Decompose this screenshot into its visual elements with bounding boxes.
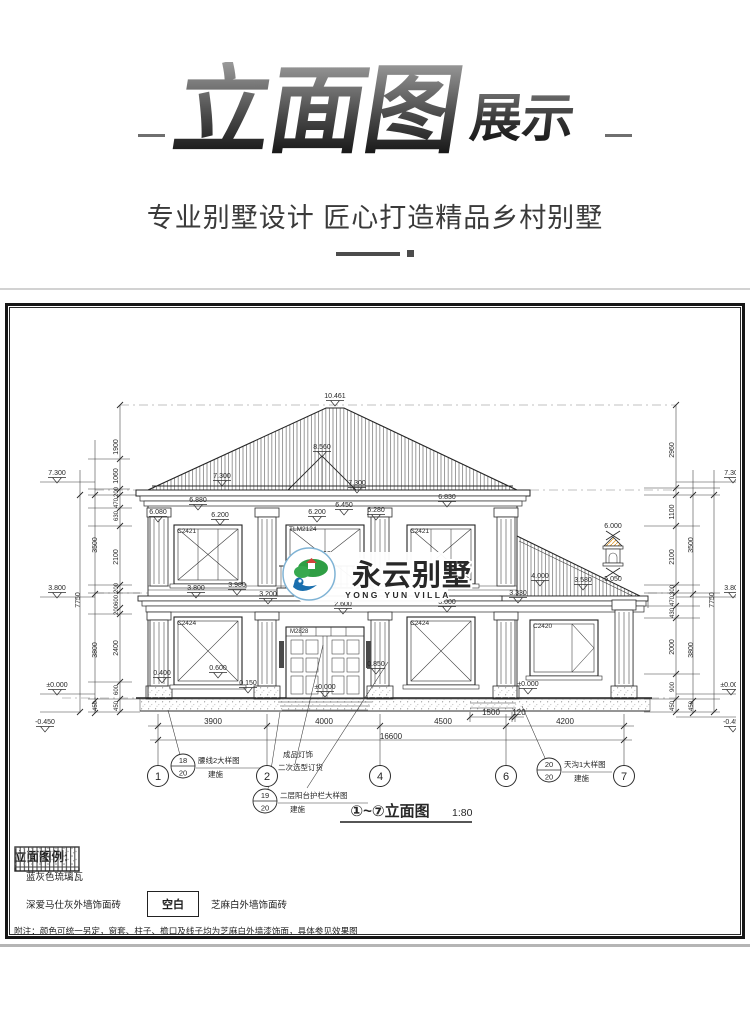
page-title: 立面图展示	[0, 62, 750, 159]
title-main: 立面图	[168, 62, 468, 159]
dim-label: 3.330	[509, 590, 527, 597]
dim-label: 470	[114, 497, 120, 508]
watermark-logo: 永云别墅 YONG YUN VILLA	[283, 548, 472, 602]
dim-label: 6.280	[367, 507, 385, 514]
dim-label: 2100	[113, 549, 120, 565]
drawing-title-text: ①~⑦立面图	[350, 802, 429, 820]
dim-label: 8.560	[313, 444, 331, 451]
dim-label: 4.000	[531, 573, 549, 580]
dim-label: 6.080	[149, 509, 167, 516]
dim-label: 0.850	[367, 661, 385, 668]
dim-label: M2828	[290, 629, 309, 635]
dim-label: 1500	[482, 708, 500, 717]
callout-number: 20	[261, 804, 269, 813]
dim-label: 630	[114, 510, 120, 521]
dim-label: 16600	[380, 732, 403, 741]
grid-bubble-label: 7	[621, 771, 627, 783]
dim-label: 470	[670, 595, 676, 606]
legend-item-tile: 蓝灰色琉璃瓦	[14, 869, 574, 883]
dim-label: 3800	[92, 642, 99, 658]
legend-label: 芝麻白外墙饰面砖	[211, 897, 287, 911]
dim-label: C2420	[533, 623, 553, 630]
dim-label: 600	[114, 594, 120, 605]
dim-label: 200	[114, 486, 120, 497]
callout-text: 二层阳台护栏大样图	[280, 790, 348, 800]
legend-heading: 立面图例:	[14, 846, 574, 865]
dim-label: 450	[114, 700, 120, 711]
section-divider	[0, 250, 750, 257]
dim-label: 1100	[669, 504, 676, 519]
divider-dot	[407, 250, 414, 257]
dim-label: 2960	[669, 442, 676, 458]
dim-label: 3.800	[724, 585, 736, 592]
callout-number: 19	[261, 791, 269, 800]
window-c2424-left	[170, 617, 246, 689]
dim-label: 430	[670, 607, 676, 618]
dim-label: 7.300	[348, 480, 366, 487]
dim-label: 2000	[669, 639, 676, 655]
dim-label: 120	[512, 708, 526, 717]
dim-label: 300	[670, 584, 676, 595]
roof-finial	[603, 531, 623, 577]
dim-label: 0.600	[209, 665, 227, 672]
dim-label: 7.300	[213, 473, 231, 480]
dim-label: 3900	[204, 717, 222, 726]
page: 立面图展示 专业别墅设计 匠心打造精品乡村别墅	[0, 0, 750, 1011]
grid-bubble-label: 6	[503, 771, 509, 783]
dim-label: 7.300	[724, 470, 736, 477]
dim-label: 0.400	[153, 670, 171, 677]
grid-bubble-label: 1	[155, 771, 161, 783]
title-sub: 展示	[467, 76, 579, 151]
dim-label: ±0.000	[314, 684, 335, 691]
dim-label: 4200	[556, 717, 574, 726]
dim-label: -0.450	[35, 719, 55, 726]
dim-label: 3500	[92, 537, 99, 553]
dim-label: 200	[114, 604, 120, 615]
dim-label: 2.600	[334, 601, 352, 608]
dim-label: 200	[114, 582, 120, 593]
dim-label: 2100	[669, 549, 676, 565]
header: 立面图展示 专业别墅设计 匠心打造精品乡村别墅	[0, 0, 750, 288]
dim-label: 5.050	[604, 576, 622, 583]
plinth	[136, 698, 652, 711]
divider-bar	[336, 252, 400, 256]
subtitle: 专业别墅设计 匠心打造精品乡村别墅	[0, 196, 750, 235]
title-dash-left	[138, 134, 165, 137]
callout-number: 20	[545, 760, 553, 769]
dim-label: ±0.000	[517, 681, 538, 688]
stipple-swatch	[14, 846, 80, 868]
callout-text: 建施	[574, 773, 589, 783]
dim-label: 600	[114, 684, 120, 695]
dim-label: 6.450	[335, 502, 353, 509]
dim-label: 900	[670, 681, 676, 692]
dim-label: 4500	[434, 717, 452, 726]
dim-label: -0.450	[723, 719, 736, 726]
dim-label: C2424	[177, 620, 197, 627]
callout-number: 18	[179, 756, 187, 765]
dim-label: TLM2124	[289, 526, 317, 533]
dim-label: 1060	[113, 468, 120, 484]
dim-label: 3.800	[187, 585, 205, 592]
dim-label: 3800	[688, 642, 695, 658]
drawing-frame: 10.4618.5607.3007.3007.3003.800±0.000-0.…	[5, 303, 745, 939]
drawing-title: ①~⑦立面图 1:80	[340, 802, 473, 822]
dim-label: 2400	[113, 640, 120, 656]
callout-text: 天沟1大样图	[564, 759, 606, 769]
callout-number: 20	[545, 773, 553, 782]
logo-name-en: YONG YUN VILLA	[345, 590, 451, 600]
dim-label: 3500	[688, 537, 695, 553]
dim-label: 6.830	[438, 494, 456, 501]
dim-label: 1900	[113, 439, 120, 455]
logo-name: 永云别墅	[352, 559, 472, 592]
dim-label: 3.980	[228, 582, 246, 589]
dim-label: 7.300	[48, 470, 66, 477]
callout-text: 腰线2大样图	[198, 755, 240, 765]
title-dash-right	[605, 134, 632, 137]
dim-label: 450	[93, 700, 99, 711]
blank-swatch: 空白	[147, 891, 199, 917]
rule-top	[0, 288, 750, 290]
legend-label: 深爱马仕灰外墙饰面砖	[26, 897, 121, 911]
callout-number: 20	[179, 769, 187, 778]
legend-note: 附注：颜色可统一另定，窗套、柱子、檐口及线子均为芝麻白外墙漆饰面，具体参见效果图	[14, 925, 574, 937]
grid-bubble-label: 2	[264, 771, 270, 783]
dim-label: 0.150	[239, 680, 257, 687]
dim-label: 6.200	[308, 509, 326, 516]
dim-label: 3.580	[574, 577, 592, 584]
dim-label: C2424	[410, 620, 430, 627]
dim-label: C2421	[177, 528, 197, 535]
dim-label: 3.800	[48, 585, 66, 592]
legend-item-gray-brick: 深爱马仕灰外墙饰面砖 空白 芝麻白外墙饰面砖	[14, 891, 574, 917]
dim-label: 4000	[315, 717, 333, 726]
door-lamp-left	[279, 641, 284, 668]
dim-label: 6.000	[604, 523, 622, 530]
rule-bottom	[0, 944, 750, 947]
dim-label: ±0.000	[46, 682, 67, 689]
drawing-scale: 1:80	[452, 807, 473, 819]
dim-label: ±0.000	[720, 682, 736, 689]
callout-text: 建施	[290, 804, 305, 814]
dim-label: 7750	[709, 592, 716, 608]
legend: 立面图例: 蓝灰色琉璃瓦 深爱马仕灰外墙饰面砖 空白 芝麻白外墙饰面砖 附注：颜…	[14, 846, 574, 937]
dim-label: 3.200	[259, 591, 277, 598]
dim-label: 成品灯饰	[283, 749, 313, 759]
window-c2424-right	[403, 617, 479, 689]
callout-text: 建施	[208, 769, 223, 779]
dim-label: 6.200	[211, 512, 229, 519]
grid-bubble-label: 4	[377, 771, 383, 783]
dim-label: C2421	[410, 528, 430, 535]
dim-label: 6.880	[189, 497, 207, 504]
dim-label: 7750	[75, 592, 82, 608]
dim-label: 450	[689, 700, 695, 711]
elevation-drawing: 10.4618.5607.3007.3007.3003.800±0.000-0.…	[8, 306, 736, 930]
main-roof	[148, 408, 517, 490]
dim-label: 二次选型订货	[278, 762, 323, 772]
dim-label: 450	[670, 700, 676, 711]
dim-label: 10.461	[324, 393, 346, 400]
